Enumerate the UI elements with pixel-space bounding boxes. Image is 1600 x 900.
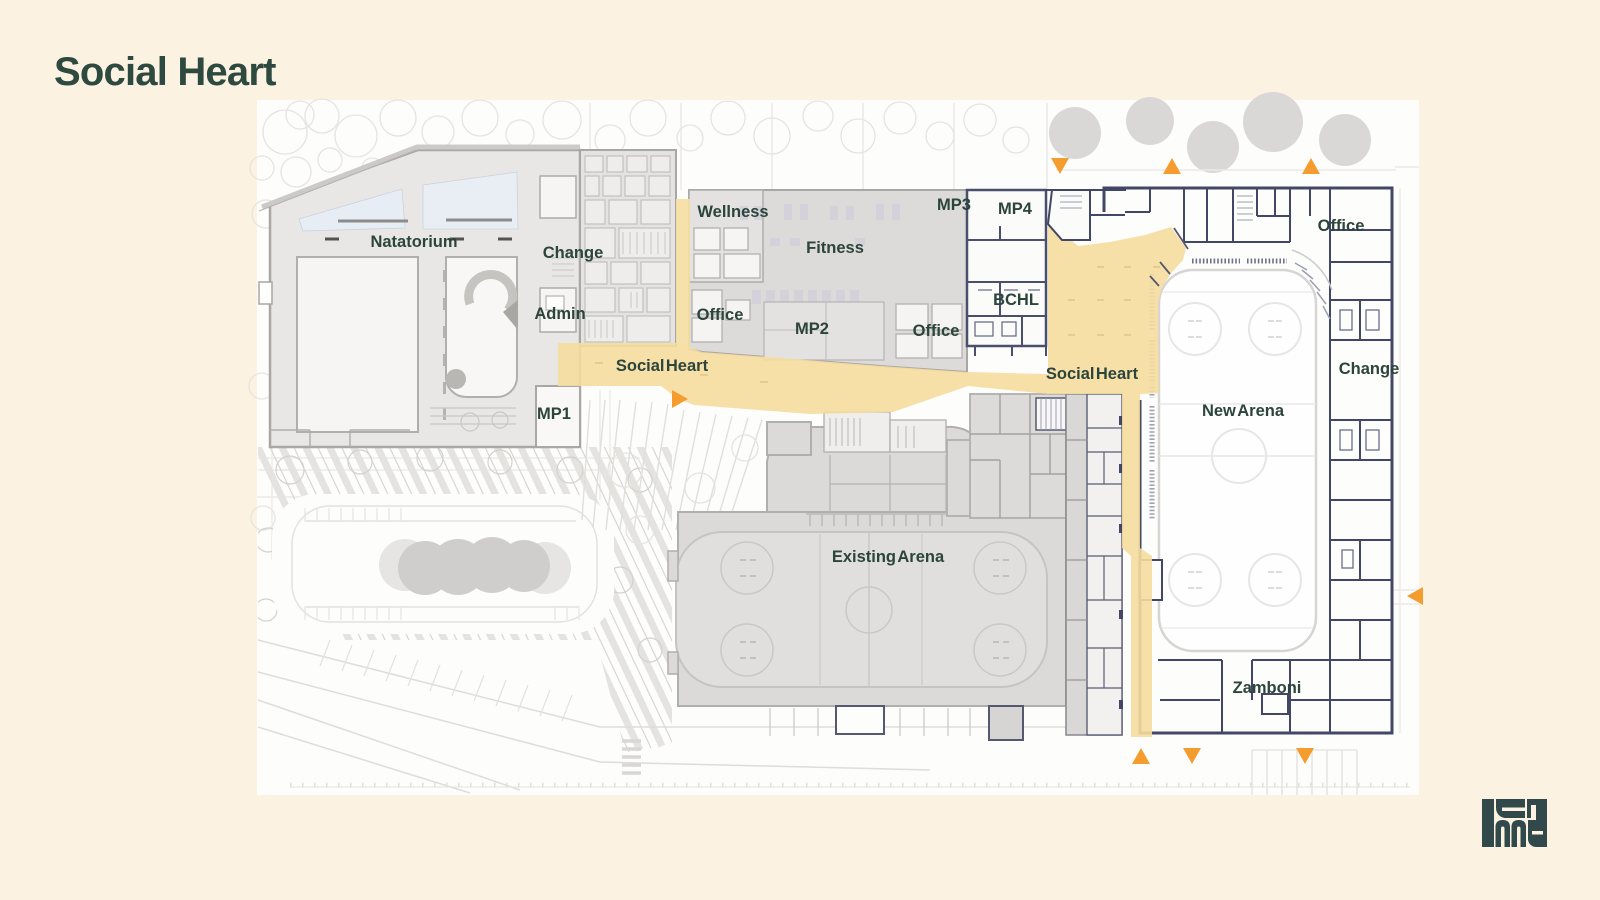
svg-text:Change: Change — [1339, 360, 1400, 378]
svg-text:Admin: Admin — [534, 305, 585, 323]
svg-text:Social Heart: Social Heart — [616, 357, 709, 375]
svg-text:Change: Change — [543, 244, 604, 262]
svg-text:New Arena: New Arena — [1202, 402, 1285, 420]
svg-text:Office: Office — [697, 306, 744, 324]
svg-text:MP1: MP1 — [537, 405, 571, 423]
svg-text:MP2: MP2 — [795, 320, 829, 338]
svg-text:Zamboni: Zamboni — [1233, 679, 1302, 697]
svg-text:Existing Arena: Existing Arena — [832, 548, 945, 566]
svg-text:Social Heart: Social Heart — [1046, 365, 1139, 383]
svg-text:BCHL: BCHL — [993, 291, 1039, 309]
svg-text:MP4: MP4 — [998, 200, 1033, 218]
svg-text:Office: Office — [1318, 217, 1365, 235]
svg-text:Social Heart: Social Heart — [54, 50, 276, 94]
svg-text:MP3: MP3 — [937, 196, 971, 214]
svg-text:Natatorium: Natatorium — [370, 233, 457, 251]
svg-text:Office: Office — [913, 322, 960, 340]
svg-text:Fitness: Fitness — [806, 239, 864, 257]
svg-text:Wellness: Wellness — [697, 203, 768, 221]
